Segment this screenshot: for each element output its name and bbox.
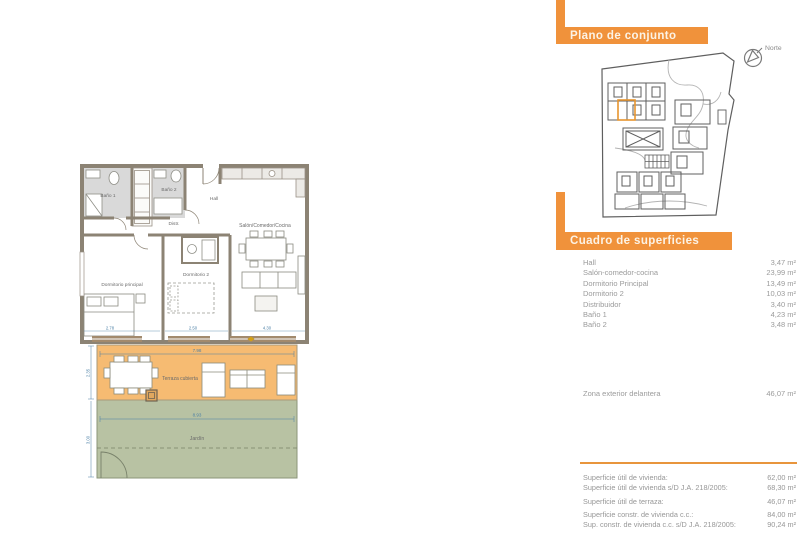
surface-value: 23,99 m² bbox=[766, 268, 796, 278]
summary-value: 90,24 m² bbox=[767, 520, 796, 530]
surface-label: Hall bbox=[583, 258, 596, 268]
surface-label: Dormitorio Principal bbox=[583, 279, 648, 289]
surface-value: 10,03 m² bbox=[766, 289, 796, 299]
surface-value: 3,47 m² bbox=[771, 258, 796, 268]
exterior-zone-row: Zona exterior delantera 46,07 m² bbox=[583, 389, 796, 399]
garden-area: 8.93 Jardín bbox=[97, 400, 297, 478]
summary-label: Sup. constr. de vivienda c.c. s/D J.A. 2… bbox=[583, 520, 736, 530]
terrace-height-dim: 2.35 bbox=[86, 368, 91, 377]
surface-label: Baño 1 bbox=[583, 310, 607, 320]
salon-width-dim: 4.30 bbox=[263, 326, 272, 331]
surface-value: 13,49 m² bbox=[766, 279, 796, 289]
summary-label: Superficie útil de vivienda: bbox=[583, 473, 668, 483]
surface-row: Baño 2 3,48 m² bbox=[583, 320, 796, 330]
dorm2-width-dim: 2.50 bbox=[189, 326, 198, 331]
summary-row: Superficie útil de terraza: 46,07 m² bbox=[583, 497, 796, 507]
surfaces-table: Hall 3,47 m² Salón-comedor-cocina 23,99 … bbox=[583, 258, 796, 331]
summary-label: Superficie constr. de vivienda c.c.: bbox=[583, 510, 693, 520]
section2-title: Cuadro de superficies bbox=[570, 235, 699, 247]
section1-accent-bar bbox=[556, 0, 565, 28]
section1-title: Plano de conjunto bbox=[570, 30, 676, 42]
surface-row: Dormitorio 2 10,03 m² bbox=[583, 289, 796, 299]
garden-height-dim: 3.00 bbox=[86, 435, 91, 444]
dorm2-label: Dormitorio 2 bbox=[183, 272, 209, 278]
summary-value: 46,07 m² bbox=[767, 497, 796, 507]
summary-value: 84,00 m² bbox=[767, 510, 796, 520]
surface-label: Dormitorio 2 bbox=[583, 289, 624, 299]
summary-label: Superficie útil de vivienda s/D J.A. 218… bbox=[583, 483, 728, 493]
surface-row: Distribuidor 3,40 m² bbox=[583, 300, 796, 310]
surface-row: Baño 1 4,23 m² bbox=[583, 310, 796, 320]
distribuidor-label: Distr. bbox=[169, 221, 180, 227]
section2-accent-bar bbox=[556, 192, 565, 233]
summary-separator-line bbox=[580, 462, 797, 464]
summary-row: Superficie constr. de vivienda c.c.: 84,… bbox=[583, 510, 796, 520]
summary-row: Sup. constr. de vivienda c.c. s/D J.A. 2… bbox=[583, 520, 796, 530]
terrace-label: Terraza cubierta bbox=[162, 376, 198, 382]
garden-width-dim: 8.93 bbox=[193, 413, 202, 418]
dorm-ppal-width-dim: 2.78 bbox=[106, 326, 115, 331]
surface-row: Hall 3,47 m² bbox=[583, 258, 796, 268]
surface-row: Salón-comedor-cocina 23,99 m² bbox=[583, 268, 796, 278]
surface-label: Salón-comedor-cocina bbox=[583, 268, 658, 278]
exterior-zone-label: Zona exterior delantera bbox=[583, 389, 661, 399]
surface-row: Dormitorio Principal 13,49 m² bbox=[583, 279, 796, 289]
summary-value: 68,30 m² bbox=[767, 483, 796, 493]
surface-label: Baño 2 bbox=[583, 320, 607, 330]
surface-label: Distribuidor bbox=[583, 300, 621, 310]
summary-row: Superficie útil de vivienda s/D J.A. 218… bbox=[583, 483, 796, 493]
floor-plan-drawing: 8.93 Jardín 7.98 Terraza cubierta bbox=[70, 160, 320, 480]
salon-label: Salón/Comedor/Cocina bbox=[239, 223, 291, 229]
terrace-width-dim: 7.98 bbox=[193, 348, 202, 353]
bano2-label: Baño 2 bbox=[161, 187, 177, 193]
summary-label: Superficie útil de terraza: bbox=[583, 497, 664, 507]
garden-label: Jardín bbox=[190, 436, 205, 442]
exterior-zone-value: 46,07 m² bbox=[766, 389, 796, 399]
section2-banner: Cuadro de superficies bbox=[556, 232, 732, 250]
section1-banner: Plano de conjunto bbox=[556, 27, 708, 44]
site-plan-drawing bbox=[595, 48, 767, 226]
terrace-dining-table bbox=[104, 356, 158, 394]
summary-row: Superficie útil de vivienda: 62,00 m² bbox=[583, 473, 796, 483]
vertical-dimensions: 2.35 3.00 bbox=[86, 346, 95, 477]
surface-value: 4,23 m² bbox=[771, 310, 796, 320]
surface-value: 3,48 m² bbox=[771, 320, 796, 330]
surface-value: 3,40 m² bbox=[771, 300, 796, 310]
dorm-ppal-label: Dormitorio principal bbox=[101, 282, 142, 288]
bano1-label: Baño 1 bbox=[100, 193, 116, 199]
hall-label: Hall bbox=[210, 196, 218, 202]
apartment-plan: Baño 1 Baño 2 Hall Distr. Salón/Comedor/… bbox=[80, 162, 307, 342]
terrace-planter bbox=[146, 390, 157, 401]
summary-table: Superficie útil de vivienda: 62,00 m² Su… bbox=[583, 473, 796, 530]
utility-block bbox=[182, 237, 218, 263]
terrace-area: 7.98 Terraza cubierta bbox=[97, 345, 297, 401]
summary-value: 62,00 m² bbox=[767, 473, 796, 483]
north-label: Norte bbox=[765, 45, 782, 52]
